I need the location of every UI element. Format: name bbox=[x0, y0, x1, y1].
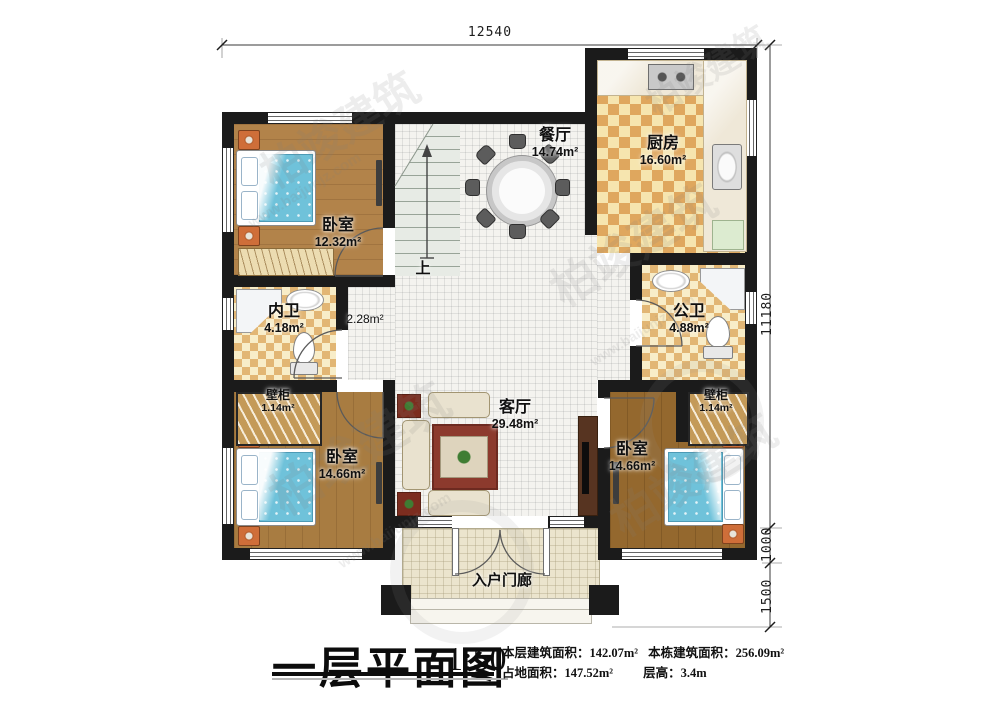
stat-label: 层高： bbox=[643, 666, 681, 680]
planter bbox=[397, 394, 421, 418]
planter bbox=[397, 492, 421, 516]
room-area: 2.28m² bbox=[330, 312, 400, 326]
room-area: 12.32m² bbox=[288, 235, 388, 250]
floor-plan-page: 柏竣建筑 柏竣建筑 柏竣建筑 柏竣建筑 柏竣建筑 www.baijunjz.co… bbox=[0, 0, 1000, 706]
room-name: 卧室 bbox=[582, 440, 682, 459]
sofa bbox=[428, 490, 490, 516]
room-name: 客厅 bbox=[465, 398, 565, 417]
window bbox=[550, 516, 584, 528]
dresser bbox=[238, 248, 334, 276]
stairs-up-text: 上 bbox=[412, 260, 434, 278]
room-label-inner-bath: 内卫 4.18m² bbox=[234, 302, 334, 336]
window bbox=[222, 148, 234, 232]
title-stats: 本层建筑面积：142.07m²本栋建筑面积：256.09m² 占地面积：147.… bbox=[502, 643, 822, 683]
bed-sheet bbox=[259, 154, 289, 220]
stats-row: 本层建筑面积：142.07m²本栋建筑面积：256.09m² bbox=[502, 643, 822, 663]
dim-right-main: 11180 bbox=[760, 292, 775, 336]
toilet-tank bbox=[290, 362, 318, 375]
nightstand bbox=[238, 130, 260, 150]
window bbox=[222, 448, 234, 524]
floor-porch bbox=[402, 528, 600, 602]
bed-pillow bbox=[724, 455, 741, 485]
window bbox=[745, 292, 757, 324]
nightstand bbox=[238, 526, 260, 546]
room-name: 厨房 bbox=[603, 134, 723, 153]
room-label-bedroom-br: 卧室 14.66m² bbox=[582, 440, 682, 474]
chair bbox=[465, 179, 480, 196]
stats-row: 占地面积：147.52m²层高：3.4m bbox=[502, 663, 822, 683]
porch-step bbox=[410, 609, 592, 624]
room-name: 餐厅 bbox=[495, 126, 615, 145]
floor-hall-corridor bbox=[597, 265, 630, 380]
bed-pillow bbox=[241, 157, 258, 186]
toilet-tank bbox=[703, 346, 733, 359]
room-area: 1.14m² bbox=[228, 402, 328, 415]
stairs-up-label: 上 bbox=[412, 260, 434, 278]
room-name: 入户门廊 bbox=[442, 572, 562, 590]
stove bbox=[648, 64, 694, 90]
room-area: 16.60m² bbox=[603, 153, 723, 168]
room-area: 4.18m² bbox=[234, 321, 334, 336]
chair bbox=[509, 224, 526, 239]
stat-value: 142.07m² bbox=[590, 646, 639, 660]
room-area: 14.66m² bbox=[582, 459, 682, 474]
wall bbox=[642, 253, 757, 265]
dim-right-bottom: 1500 bbox=[760, 579, 775, 614]
bed-pillow bbox=[241, 490, 258, 520]
stat-value: 3.4m bbox=[681, 666, 707, 680]
window bbox=[222, 298, 234, 330]
window bbox=[622, 548, 722, 560]
bed-sheet bbox=[691, 452, 721, 520]
window bbox=[268, 112, 352, 124]
nightstand bbox=[722, 524, 744, 544]
room-label-porch: 入户门廊 bbox=[442, 572, 562, 590]
coffee-table bbox=[440, 436, 488, 478]
dim-top: 12540 bbox=[455, 25, 525, 40]
room-area: 14.74m² bbox=[495, 145, 615, 160]
window bbox=[628, 48, 704, 60]
wall bbox=[630, 346, 642, 380]
stat-value: 256.09m² bbox=[736, 646, 785, 660]
room-area: 1.14m² bbox=[666, 402, 766, 415]
room-label-living: 客厅 29.48m² bbox=[465, 398, 565, 432]
sofa bbox=[402, 420, 430, 490]
room-label-closet-right: 壁柜 1.14m² bbox=[666, 388, 766, 415]
bathroom-sink bbox=[652, 270, 690, 292]
wall bbox=[630, 253, 642, 300]
title-underline-light bbox=[272, 678, 508, 680]
entry-door-leaf bbox=[543, 528, 550, 576]
bed-pillow bbox=[241, 191, 258, 220]
floor-hall-small bbox=[348, 287, 395, 380]
stat-label: 占地面积： bbox=[502, 666, 565, 680]
nightstand bbox=[238, 226, 260, 246]
room-name: 公卫 bbox=[639, 302, 739, 321]
room-name: 卧室 bbox=[288, 216, 388, 235]
kitchen-cabinet bbox=[712, 220, 744, 250]
bed-pillow bbox=[241, 455, 258, 485]
room-label-hall: 2.28m² bbox=[330, 312, 400, 326]
title-underline bbox=[272, 672, 494, 676]
stat-value: 147.52m² bbox=[565, 666, 614, 680]
room-name: 内卫 bbox=[234, 302, 334, 321]
window bbox=[250, 548, 362, 560]
room-area: 4.88m² bbox=[639, 321, 739, 336]
room-label-dining: 餐厅 14.74m² bbox=[495, 126, 615, 160]
bed-pillow bbox=[724, 490, 741, 520]
room-area: 14.66m² bbox=[292, 467, 392, 482]
bed bbox=[236, 150, 316, 226]
entry-door-leaf bbox=[452, 528, 459, 576]
room-label-bedroom-bl: 卧室 14.66m² bbox=[292, 448, 392, 482]
room-name: 壁柜 bbox=[666, 388, 766, 402]
room-area: 29.48m² bbox=[465, 417, 565, 432]
porch-column bbox=[381, 585, 411, 615]
room-label-bedroom-tl: 卧室 12.32m² bbox=[288, 216, 388, 250]
window bbox=[418, 516, 452, 528]
bed-sheet bbox=[259, 452, 289, 520]
porch-column bbox=[589, 585, 619, 615]
room-label-public-bath: 公卫 4.88m² bbox=[639, 302, 739, 336]
room-name: 卧室 bbox=[292, 448, 392, 467]
stat-label: 本层建筑面积： bbox=[502, 646, 590, 660]
wall bbox=[222, 275, 395, 287]
room-label-closet-left: 壁柜 1.14m² bbox=[228, 388, 328, 415]
dim-right-mid: 1000 bbox=[760, 527, 775, 562]
stat-label: 本栋建筑面积： bbox=[648, 646, 736, 660]
toilet bbox=[293, 332, 315, 364]
wall bbox=[383, 112, 395, 228]
room-name: 壁柜 bbox=[228, 388, 328, 402]
tv-panel bbox=[376, 160, 382, 206]
chair bbox=[555, 179, 570, 196]
room-label-kitchen: 厨房 16.60m² bbox=[603, 134, 723, 168]
